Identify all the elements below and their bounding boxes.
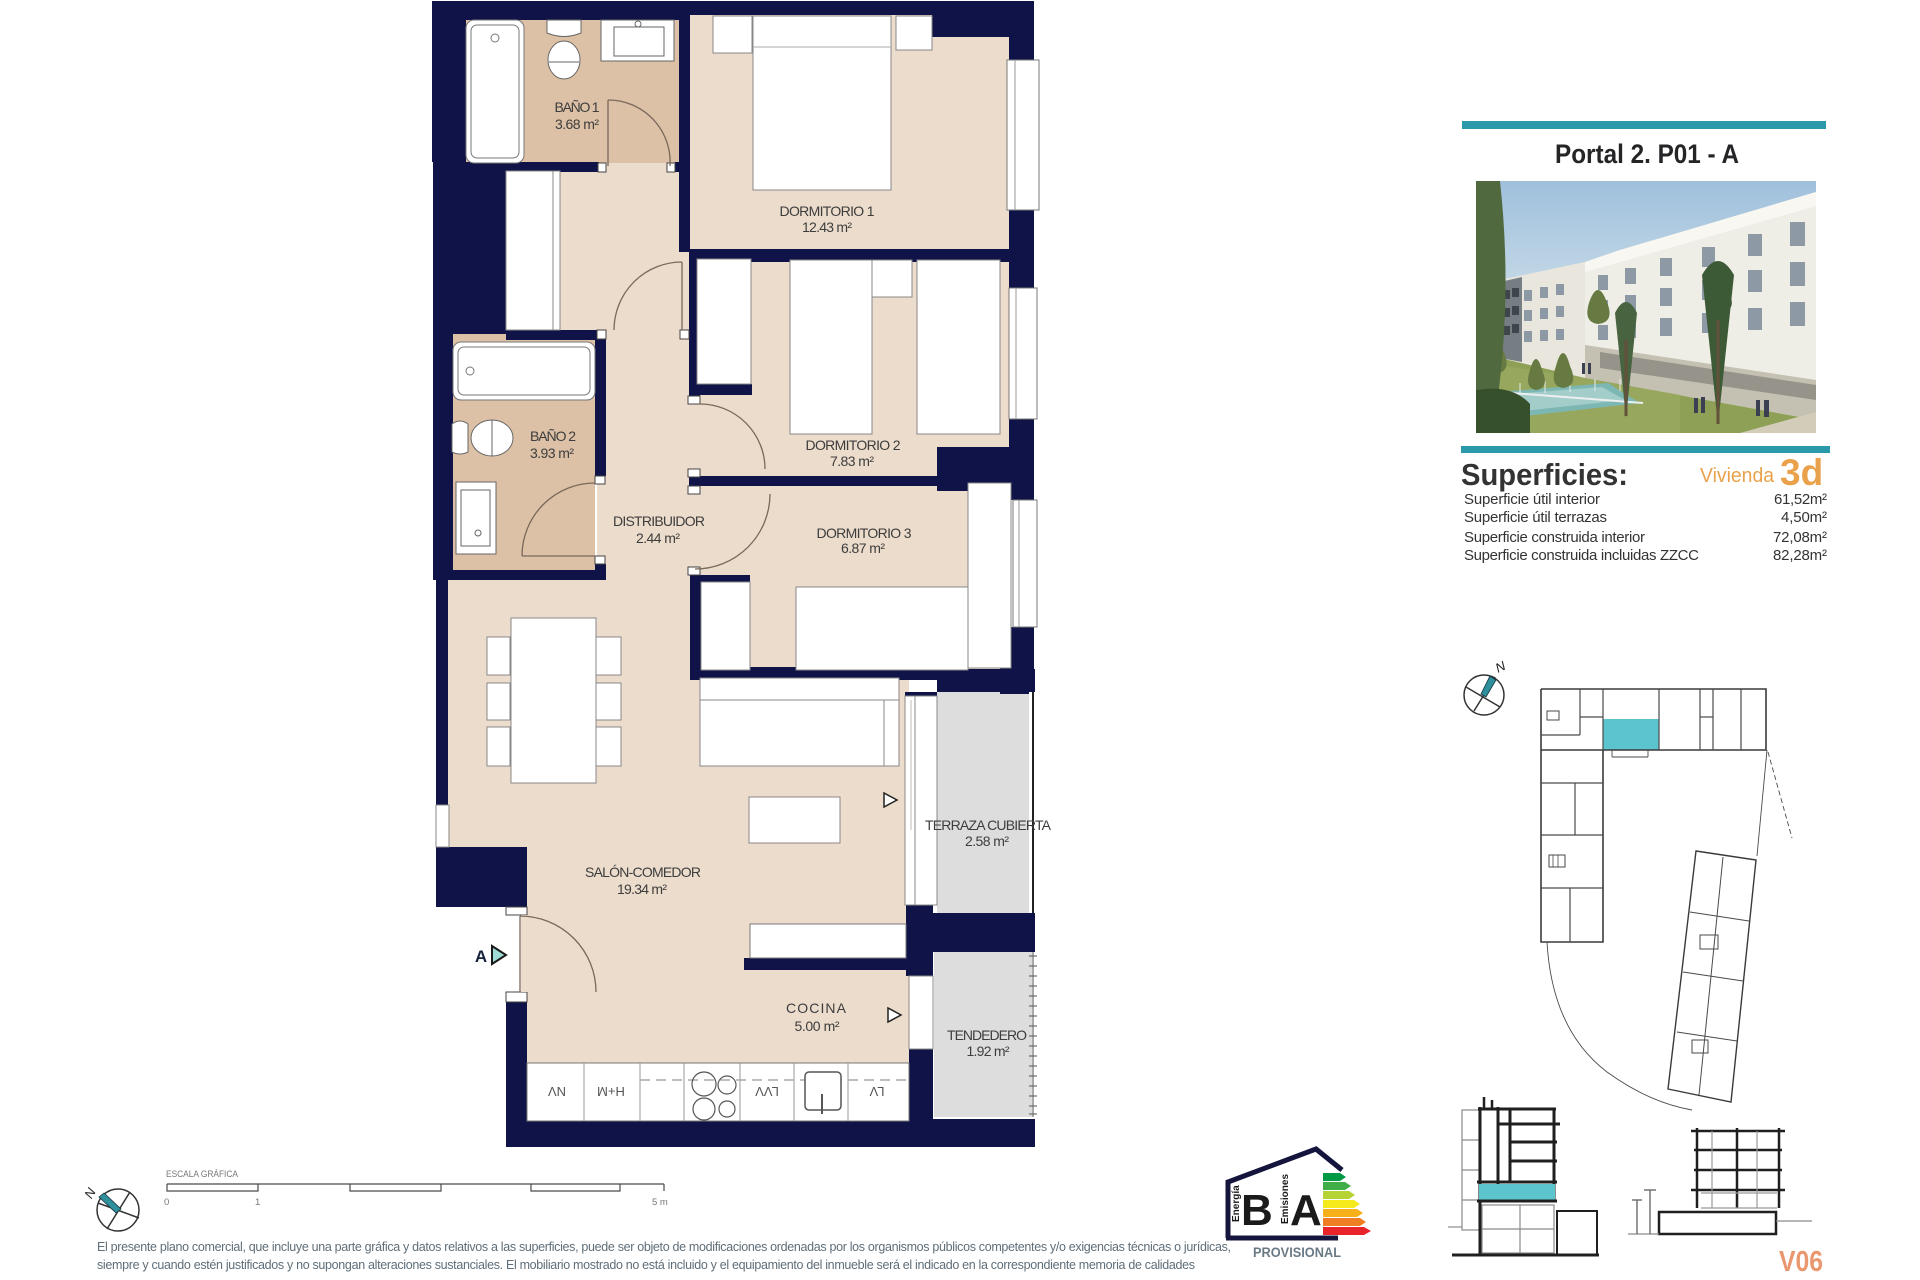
svg-text:LV: LV [869, 1084, 884, 1099]
svg-text:Superficie construida incluida: Superficie construida incluidas ZZCC [1464, 547, 1699, 564]
svg-text:72,08m²: 72,08m² [1773, 529, 1827, 546]
svg-text:V06: V06 [1779, 1246, 1823, 1278]
svg-text:0: 0 [164, 1197, 169, 1208]
svg-text:A: A [1290, 1186, 1322, 1235]
svg-text:TERRAZA CUBIERTA: TERRAZA CUBIERTA [925, 817, 1052, 833]
svg-text:5 m: 5 m [652, 1197, 668, 1208]
svg-text:LVV: LVV [755, 1084, 779, 1099]
svg-text:PROVISIONAL: PROVISIONAL [1253, 1245, 1341, 1260]
svg-text:61,52m²: 61,52m² [1774, 491, 1827, 508]
svg-text:Energía: Energía [1231, 1185, 1242, 1222]
svg-text:3d: 3d [1780, 452, 1823, 493]
svg-text:Superficie construida interior: Superficie construida interior [1464, 529, 1645, 546]
svg-text:Superficies:: Superficies: [1461, 457, 1628, 492]
svg-text:Emisiones: Emisiones [1280, 1174, 1291, 1224]
svg-text:BAÑO 1: BAÑO 1 [555, 99, 600, 115]
svg-text:Vivienda: Vivienda [1700, 465, 1775, 487]
svg-text:4,50m²: 4,50m² [1781, 509, 1827, 526]
svg-text:TENDEDERO: TENDEDERO [947, 1027, 1027, 1043]
svg-text:N: N [81, 1185, 99, 1201]
svg-text:DORMITORIO 3: DORMITORIO 3 [817, 525, 912, 541]
svg-text:siempre y cuando estén justifi: siempre y cuando estén justificados y no… [97, 1258, 1195, 1272]
svg-text:Portal 2. P01 - A: Portal 2. P01 - A [1555, 139, 1739, 169]
svg-text:3.68 m²: 3.68 m² [555, 116, 599, 132]
svg-text:82,28m²: 82,28m² [1773, 547, 1827, 564]
svg-text:SALÓN-COMEDOR: SALÓN-COMEDOR [585, 864, 701, 880]
svg-text:NV: NV [548, 1084, 566, 1099]
svg-text:BAÑO 2: BAÑO 2 [530, 428, 576, 444]
svg-text:DORMITORIO 1: DORMITORIO 1 [780, 203, 875, 219]
svg-text:DISTRIBUIDOR: DISTRIBUIDOR [613, 513, 705, 529]
svg-text:1.92 m²: 1.92 m² [967, 1043, 1010, 1059]
svg-text:6.87 m²: 6.87 m² [841, 540, 885, 556]
svg-text:Superficie útil interior: Superficie útil interior [1464, 491, 1600, 508]
svg-text:A: A [475, 947, 487, 966]
svg-text:1: 1 [255, 1197, 260, 1208]
svg-text:12.43 m²: 12.43 m² [802, 219, 852, 235]
svg-text:DORMITORIO 2: DORMITORIO 2 [806, 437, 901, 453]
svg-text:7.83 m²: 7.83 m² [830, 453, 874, 469]
svg-text:El presente plano comercial, q: El presente plano comercial, que incluye… [97, 1240, 1231, 1254]
svg-text:COCINA: COCINA [786, 1000, 847, 1016]
svg-text:H+M: H+M [597, 1084, 625, 1099]
svg-text:3.93 m²: 3.93 m² [530, 445, 574, 461]
svg-text:19.34 m²: 19.34 m² [617, 881, 667, 897]
svg-text:B: B [1241, 1186, 1273, 1235]
svg-text:Superficie útil terrazas: Superficie útil terrazas [1464, 509, 1607, 526]
svg-text:2.58 m²: 2.58 m² [965, 833, 1009, 849]
svg-text:ESCALA GRÁFICA: ESCALA GRÁFICA [166, 1169, 239, 1180]
svg-text:5.00 m²: 5.00 m² [795, 1018, 840, 1034]
svg-text:2.44 m²: 2.44 m² [636, 530, 680, 546]
svg-text:N: N [1493, 658, 1508, 676]
